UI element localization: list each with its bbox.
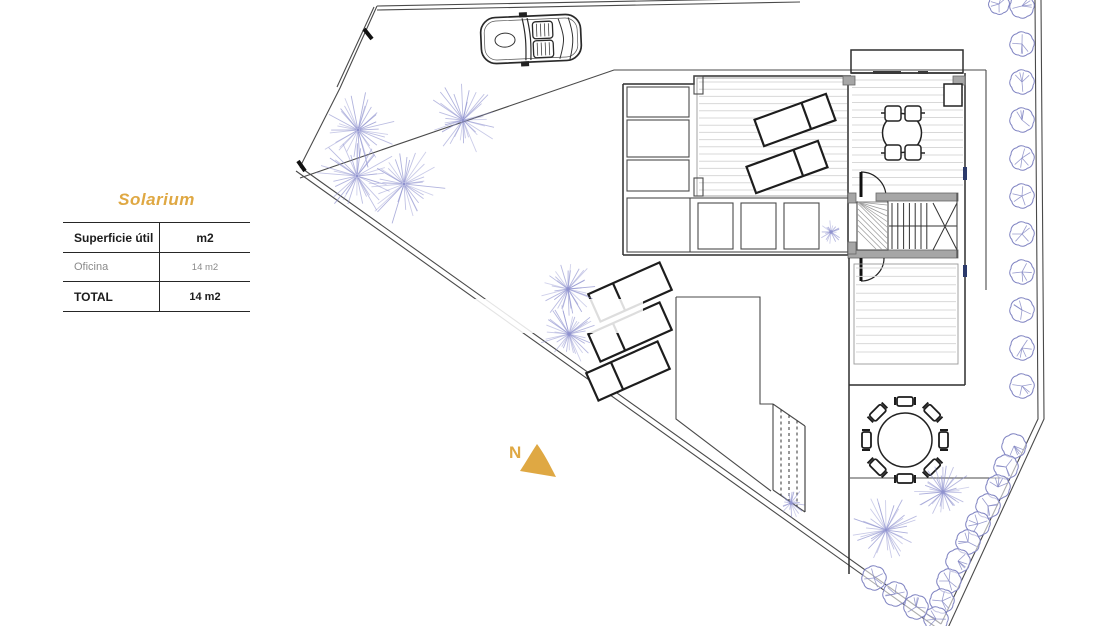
tree-icon (821, 220, 839, 243)
shrub-icon (1010, 184, 1035, 209)
site-plan: N Solarium Superficie útil m2 Oficina 14… (0, 0, 1110, 626)
tree-icon (853, 499, 917, 558)
shrub-icon (1010, 32, 1035, 57)
boundary-tick (364, 29, 372, 39)
north-arrow: N (509, 443, 556, 477)
row-label: Oficina (63, 253, 160, 281)
plan-drawing: N (0, 0, 1110, 626)
vegetation (316, 0, 1034, 626)
shrub-icon (1010, 298, 1035, 323)
sun-lounger (747, 141, 828, 193)
shrub-icon (1010, 0, 1035, 18)
dining-table (881, 106, 925, 160)
car-mirror (521, 61, 529, 66)
total-label: TOTAL (63, 282, 160, 311)
total-value: 14 m2 (160, 282, 250, 311)
north-arrow-icon (520, 444, 556, 477)
planter-cells (627, 87, 689, 191)
tree-icon (914, 466, 969, 514)
shrub-icon (883, 582, 908, 607)
shrub-icon (1010, 260, 1035, 285)
shrub-icon (1010, 374, 1035, 399)
boundary-tick (298, 161, 305, 171)
shrub-icon (862, 566, 887, 591)
site-boundary (296, 0, 1044, 626)
shrub-icon (1010, 70, 1035, 95)
window-mark (963, 167, 967, 180)
car-mirror (519, 12, 527, 17)
shrub-icon (1010, 146, 1035, 171)
legend-title: Solarium (63, 190, 250, 210)
main-building (623, 50, 967, 574)
table-row-oficina: Oficina 14 m2 (63, 253, 250, 282)
sun-lounger (755, 94, 836, 146)
shrub-icon (904, 595, 929, 620)
shrub-icon (989, 0, 1010, 14)
shrub-icon (1010, 222, 1035, 247)
car (480, 10, 582, 68)
pergola-band (627, 198, 848, 252)
legend-panel: Solarium Superficie útil m2 Oficina 14 m… (63, 190, 250, 312)
table-row-total: TOTAL 14 m2 (63, 282, 250, 312)
shrub-icon (1010, 336, 1035, 361)
north-label: N (509, 443, 521, 462)
table-header-row: Superficie útil m2 (63, 223, 250, 253)
tree-icon (433, 84, 494, 152)
row-value: 14 m2 (160, 253, 250, 281)
header-m2: m2 (160, 223, 250, 252)
header-superficie: Superficie útil (63, 223, 160, 252)
area-table: Superficie útil m2 Oficina 14 m2 TOTAL 1… (63, 222, 250, 312)
door-arc (861, 258, 884, 281)
watermark (448, 299, 643, 333)
shrub-icon (1010, 108, 1035, 133)
planter-box (944, 84, 962, 106)
round-table (862, 397, 948, 483)
window-mark (963, 265, 967, 277)
